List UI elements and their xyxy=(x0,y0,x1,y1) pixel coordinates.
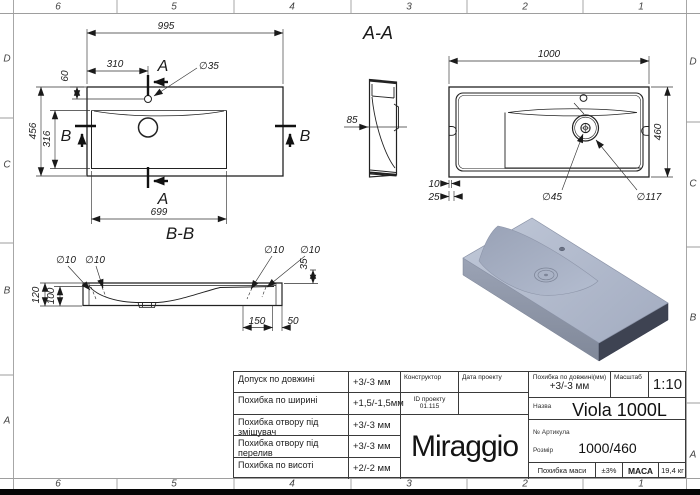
zone-col-2-bottom: 2 xyxy=(522,479,528,490)
dim-label-d10-3: ∅10 xyxy=(264,245,284,256)
dim-label-d10-1: ∅10 xyxy=(56,255,76,266)
plan-outer-outline xyxy=(87,87,283,176)
name-cell: Назва Viola 1000L xyxy=(529,398,686,420)
zone-col-6-top: 6 xyxy=(55,2,61,13)
dim-label-310: 310 xyxy=(107,59,124,70)
dim-label-100: 100 xyxy=(46,287,57,304)
model-faucet-hole xyxy=(559,247,564,251)
dim-label-25: 25 xyxy=(427,192,440,203)
length-tolerance-cell: Похибка по довжині(мм) +3/-3 мм xyxy=(529,372,611,398)
dim-label-d35: ∅35 xyxy=(199,61,219,72)
bottom-black-bar xyxy=(0,489,700,495)
dim-label-150: 150 xyxy=(249,316,266,327)
section-letter-a-bottom: A xyxy=(157,191,169,208)
project-id-cell: ID проекту 01.115 xyxy=(401,393,459,415)
section-letter-a-top: A xyxy=(157,58,169,75)
tolerance-value-1: +3/-3 мм xyxy=(349,372,401,393)
project-id-label: ID проекту xyxy=(401,396,458,403)
section-aa-view: A-A 85 xyxy=(344,23,407,177)
dim-label-120: 120 xyxy=(31,286,42,303)
title-block: Допуск по довжині +3/-3 мм Похибка по ши… xyxy=(233,371,686,478)
project-date-cell: Дата проекту xyxy=(459,372,529,393)
tolerance-value-4: +3/-3 мм xyxy=(349,436,401,458)
mount-slot-left xyxy=(449,127,456,136)
zone-row-b-left: B xyxy=(4,286,11,297)
zone-col-3-bottom: 3 xyxy=(406,479,412,490)
dim-label-316: 316 xyxy=(42,130,53,147)
zone-row-d-left: D xyxy=(3,54,10,65)
zone-row-c-right: C xyxy=(689,179,696,190)
tolerance-label-1: Допуск по довжині xyxy=(234,372,349,393)
constructor-cell: Конструктор xyxy=(401,372,459,393)
zone-row-b-right: B xyxy=(690,313,697,324)
dim-label-1000: 1000 xyxy=(538,49,561,60)
model-3d-view xyxy=(463,218,668,361)
scale-label-cell: Масштаб xyxy=(611,372,649,398)
plan-drain-hole xyxy=(139,118,158,137)
basin-footprint-lens xyxy=(508,109,637,116)
scale-value-cell: 1:10 xyxy=(649,372,686,398)
tolerance-value-5: +2/-2 мм xyxy=(349,458,401,479)
plan-faucet-hole xyxy=(145,96,152,103)
tolerance-value-2: +1,5/-1,5мм xyxy=(349,393,401,415)
zone-row-a-right: A xyxy=(690,450,697,461)
zone-row-a-left: A xyxy=(4,416,11,427)
article-size-cell: № Артикула Розмір 1000/460 xyxy=(529,420,686,463)
zone-col-4-bottom: 4 xyxy=(289,479,295,490)
section-bb-title: B-B xyxy=(166,224,194,243)
tolerance-label-5: Похибка по висоті xyxy=(234,458,349,479)
length-tolerance-value: +3/-3 мм xyxy=(529,381,610,392)
zone-row-c-left: C xyxy=(3,160,10,171)
section-aa-title: A-A xyxy=(362,23,393,43)
size-value: 1000/460 xyxy=(529,440,686,456)
dim-label-10: 10 xyxy=(428,179,440,190)
dim-label-d45: ∅45 xyxy=(542,192,562,203)
dim-label-d10-4: ∅10 xyxy=(300,245,320,256)
zone-col-3-top: 3 xyxy=(406,2,412,13)
dim-label-50: 50 xyxy=(287,316,299,327)
logo-cell: Miraggio xyxy=(401,415,529,479)
zone-row-d-right: D xyxy=(689,57,696,68)
zone-col-5-bottom: 5 xyxy=(171,479,177,490)
tolerance-value-3: +3/-3 мм xyxy=(349,415,401,436)
mass-tolerance-value-cell: ±3% xyxy=(596,463,623,478)
project-id-value: 01.115 xyxy=(401,403,458,410)
bottom-drain xyxy=(573,115,599,141)
bottom-dimension-lines xyxy=(441,56,673,201)
section-letter-b-left: B xyxy=(61,128,72,145)
brand-logo: Miraggio xyxy=(411,430,518,464)
length-tolerance-label: Похибка по довжині(мм) xyxy=(529,372,610,381)
dim-label-460: 460 xyxy=(653,123,664,140)
dim-label-d117: ∅117 xyxy=(637,192,662,203)
section-bb-view: ∅10 ∅10 ∅10 ∅10 120 100 35 150 50 xyxy=(31,245,320,331)
dim-label-699: 699 xyxy=(151,207,168,218)
dim-label-d10-2: ∅10 xyxy=(85,255,105,266)
zone-col-5-top: 5 xyxy=(171,2,177,13)
mass-value-cell: 19,4 кг xyxy=(659,463,686,478)
mass-label-cell: МАСА xyxy=(623,463,659,478)
mass-tolerance-label-cell: Похибка маси xyxy=(529,463,596,478)
drawing-sheet: 995 310 60 456 316 699 ∅35 A A B B B-B A… xyxy=(0,0,700,495)
dim-label-85: 85 xyxy=(346,115,358,126)
dim-label-35: 35 xyxy=(299,258,310,270)
bb-bowl-curve xyxy=(89,286,274,303)
zone-col-2-top: 2 xyxy=(522,2,528,13)
zone-col-4-top: 4 xyxy=(289,2,295,13)
dim-label-456: 456 xyxy=(28,122,39,139)
section-letter-b-right: B xyxy=(300,128,311,145)
zone-col-1-bottom: 1 xyxy=(638,479,644,490)
plan-section-marks xyxy=(75,75,296,188)
plan-basin-curve xyxy=(94,111,224,116)
bottom-outer-outline xyxy=(449,87,649,177)
empty-cell xyxy=(459,393,529,415)
zone-col-6-bottom: 6 xyxy=(55,479,61,490)
article-label: № Артикула xyxy=(530,427,570,436)
plan-view: 995 310 60 456 316 699 ∅35 A A B B B-B xyxy=(28,21,311,243)
dim-label-995: 995 xyxy=(158,21,175,32)
tolerance-label-4: Похибка отвору під перелив xyxy=(234,436,349,458)
zone-col-1-top: 1 xyxy=(638,2,644,13)
tolerance-label-3: Похибка отвору під змішувач xyxy=(234,415,349,436)
product-name: Viola 1000L xyxy=(529,400,686,421)
bottom-view: 1000 460 10 25 ∅45 ∅117 xyxy=(427,49,673,203)
tolerance-label-2: Похибка по ширині xyxy=(234,393,349,415)
dim-label-60: 60 xyxy=(60,70,71,82)
